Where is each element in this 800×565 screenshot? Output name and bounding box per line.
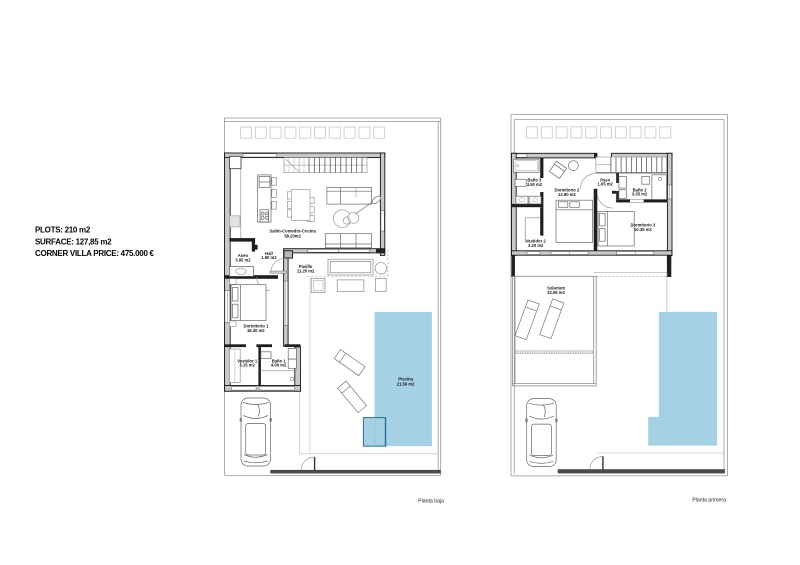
svg-text:3.15 m2: 3.15 m2 — [239, 363, 255, 368]
svg-text:PLOTS: 210 m2: PLOTS: 210 m2 — [35, 225, 91, 234]
svg-text:3.20 m2: 3.20 m2 — [528, 243, 544, 248]
svg-text:3.35 m2: 3.35 m2 — [632, 192, 648, 197]
svg-text:10.35 m2: 10.35 m2 — [634, 227, 652, 232]
svg-text:CORNER VILLA PRICE: 475.000 €: CORNER VILLA PRICE: 475.000 € — [35, 249, 155, 258]
svg-text:Planta primera: Planta primera — [692, 498, 726, 504]
svg-text:21.56 m2: 21.56 m2 — [397, 381, 415, 386]
svg-text:3.95 m2: 3.95 m2 — [235, 258, 251, 263]
svg-text:SURFACE: 127,85 m2: SURFACE: 127,85 m2 — [35, 237, 112, 246]
svg-text:Planta baja: Planta baja — [418, 498, 444, 504]
svg-text:4.00 m2: 4.00 m2 — [271, 363, 287, 368]
svg-text:3.50 m2: 3.50 m2 — [527, 182, 543, 187]
svg-text:16.30 m2: 16.30 m2 — [247, 328, 265, 333]
svg-text:11.20 m2: 11.20 m2 — [297, 268, 315, 273]
svg-text:32.55 m2: 32.55 m2 — [547, 290, 565, 295]
svg-text:12.90 m2: 12.90 m2 — [558, 192, 576, 197]
svg-text:58.20m2: 58.20m2 — [284, 234, 301, 239]
svg-text:1.05 m2: 1.05 m2 — [598, 182, 614, 187]
svg-text:1.90 m2: 1.90 m2 — [261, 255, 277, 260]
